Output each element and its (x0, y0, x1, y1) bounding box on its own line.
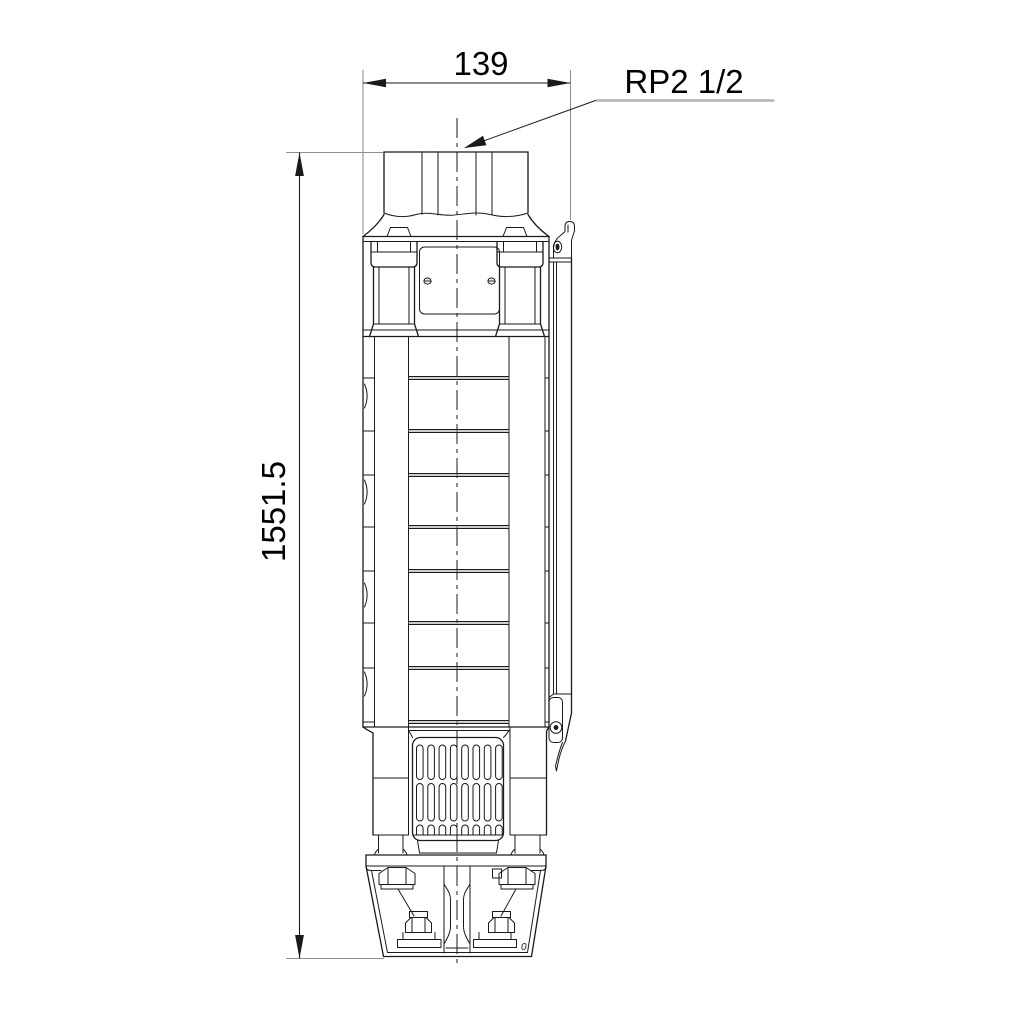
arrowhead-right-icon (548, 79, 571, 88)
hex-nut-upper-left (379, 868, 415, 890)
leader-line (466, 101, 596, 148)
arrowhead-left-icon (363, 79, 386, 88)
leader-arrowhead-icon (464, 136, 486, 148)
chamber-stack (363, 337, 549, 836)
suction-strainer (409, 731, 510, 854)
valve-casing (363, 237, 549, 728)
cable-guard (549, 222, 575, 772)
cable-guard-hook (553, 222, 574, 259)
pump-dimensional-drawing: 0 139 1551.5 RP2 1/2 (0, 0, 1024, 1024)
side-column-right (510, 727, 549, 855)
discharge-thread (384, 152, 528, 217)
hex-nut-lower-left (398, 912, 442, 948)
stray-zero-text: 0 (521, 942, 527, 953)
side-column-left (363, 727, 409, 855)
hex-nut-upper-right (493, 868, 536, 890)
cable-clamp-left (370, 228, 419, 337)
arrowhead-up-icon (295, 153, 304, 177)
width-dimension: 139 (363, 45, 571, 234)
height-dimension-text: 1551.5 (255, 461, 292, 562)
nameplate-plate (420, 247, 500, 314)
connection-label-text: RP2 1/2 (624, 63, 743, 100)
cable-guard-clamp (549, 694, 572, 771)
width-dimension-text: 139 (453, 45, 508, 82)
drawing-canvas: 0 139 1551.5 RP2 1/2 (0, 0, 1024, 1024)
hex-nut-lower-right (474, 912, 517, 948)
motor-bracket: 0 (366, 855, 546, 957)
arrowhead-down-icon (295, 935, 304, 959)
height-dimension: 1551.5 (255, 153, 384, 959)
stage-joints (363, 377, 549, 724)
connection-leader: RP2 1/2 (464, 63, 775, 148)
cable-clamp-right (496, 228, 545, 337)
strainer-slots (417, 745, 503, 849)
